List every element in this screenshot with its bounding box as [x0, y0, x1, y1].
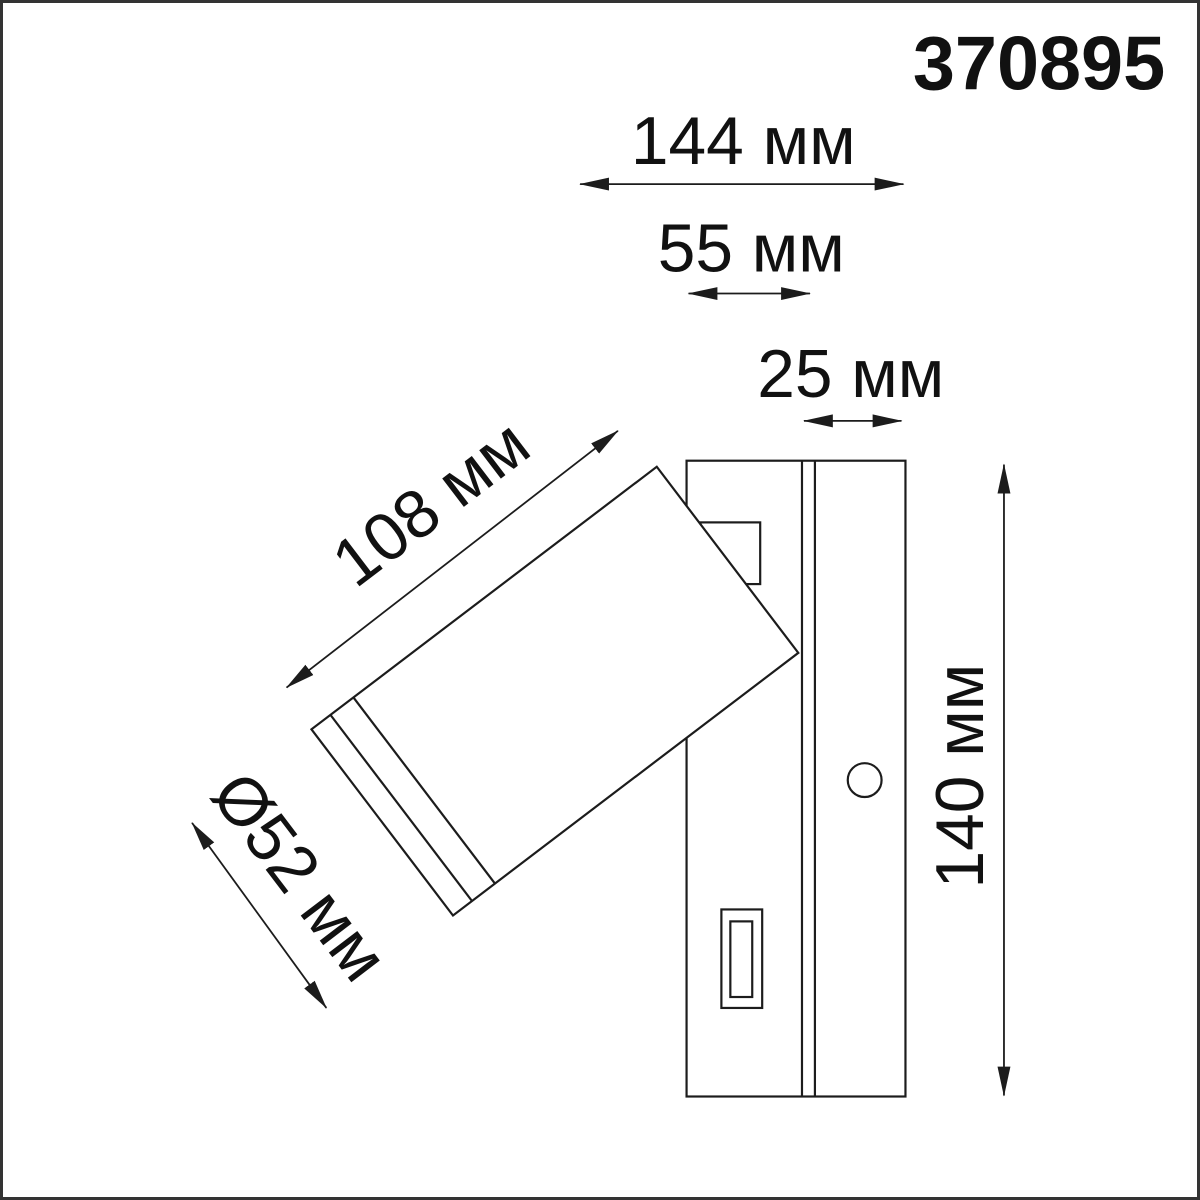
dim-head-length-label: 108 мм: [319, 406, 543, 602]
usb-port-inner: [730, 921, 752, 997]
product-code: 370895: [913, 23, 1165, 107]
dim-height-label: 140 мм: [923, 664, 998, 889]
dim-body-depth-label: 55 мм: [658, 212, 845, 287]
technical-drawing: 144 мм 55 мм 25 мм 108 мм Ø52 мм 140 мм …: [3, 3, 1197, 1197]
dim-plate-depth-label: 25 мм: [757, 337, 944, 412]
drawing-sheet: 144 мм 55 мм 25 мм 108 мм Ø52 мм 140 мм …: [0, 0, 1200, 1200]
dim-total-depth-label: 144 мм: [631, 104, 856, 179]
